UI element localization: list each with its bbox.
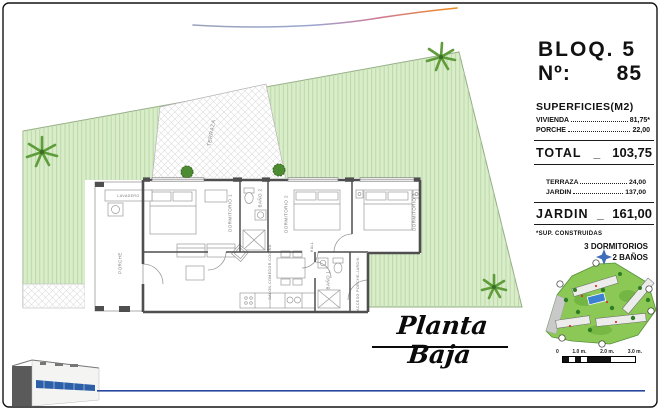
room-label-porche: PORCHE xyxy=(118,252,123,274)
surface-label: JARDIN xyxy=(546,188,571,198)
dot-leader xyxy=(580,183,627,184)
room-label-bano2: BAÑO 2 xyxy=(258,189,263,208)
divider xyxy=(534,164,654,165)
surface-row: PORCHE 22,00 xyxy=(536,126,650,136)
room-label-dormitorio3: DORMITORIO 3 xyxy=(412,193,417,231)
top-swoosh xyxy=(193,8,457,27)
surface-value: 137,00 xyxy=(625,188,646,198)
dresser xyxy=(205,190,227,202)
total-row: TOTAL _ 103,75 xyxy=(536,145,652,160)
scale-label: 0 xyxy=(556,349,559,355)
surface-label: PORCHE xyxy=(536,126,566,136)
scale-label: 1.0 m. xyxy=(572,349,586,355)
built-surface-rows: VIVIENDA 81,75* PORCHE 22,00 xyxy=(536,116,650,135)
dot-leader xyxy=(571,121,628,122)
surface-label: VIVIENDA xyxy=(536,116,569,126)
surface-value: 22,00 xyxy=(632,126,650,136)
surface-value: 81,75* xyxy=(630,116,650,126)
room-label-lavadero: LAVADERO xyxy=(117,194,139,198)
block-title: BLOQ. 5 xyxy=(538,38,636,62)
toilet xyxy=(244,188,254,204)
coffee-table xyxy=(186,266,204,280)
surface-value: 24,00 xyxy=(629,178,646,188)
dot-leader xyxy=(568,131,631,132)
plan-title-underline xyxy=(372,346,508,348)
logo-building xyxy=(12,360,99,406)
surface-label: TERRAZA xyxy=(546,178,578,188)
unit-number-row: Nº: 85 xyxy=(538,62,642,86)
surface-row: TERRAZA 24,00 xyxy=(546,178,646,188)
kitchen-counter xyxy=(240,293,315,308)
surface-row: VIVIENDA 81,75* xyxy=(536,116,650,126)
scale-bar-segments xyxy=(562,356,636,363)
washer xyxy=(108,203,123,216)
porch-paving xyxy=(23,284,85,308)
scale-bar: 0 1.0 m. 2.0 m. 3.0 m. xyxy=(556,349,642,363)
bedrooms-count: 3 DORMITORIOS xyxy=(536,242,648,253)
bathrooms-count: 2 BAÑOS xyxy=(536,253,648,264)
garden-label: JARDIN xyxy=(536,207,589,221)
unit-number-value: 85 xyxy=(617,62,642,86)
toilet xyxy=(333,258,343,273)
room-label-bano1: BAÑO 1 xyxy=(326,271,331,290)
divider xyxy=(534,202,654,203)
room-label-dormitorio1: DORMITORIO 1 xyxy=(228,194,233,232)
divider xyxy=(534,224,654,225)
terrace-paving xyxy=(152,84,286,180)
scale-label: 2.0 m. xyxy=(600,349,614,355)
bed xyxy=(294,190,340,230)
total-value: 103,75 xyxy=(612,145,652,160)
scale-segment xyxy=(587,357,611,362)
surfaces-title: SUPERFICIES(M2) xyxy=(536,101,634,113)
bed xyxy=(356,190,420,230)
garden-value: 161,00 xyxy=(612,206,652,221)
total-label: TOTAL xyxy=(536,146,582,160)
room-label-salon: SALON-COMEDOR-COCINA xyxy=(268,244,272,299)
shower xyxy=(318,290,340,308)
divider xyxy=(534,140,654,141)
surface-row: JARDIN 137,00 xyxy=(546,188,646,198)
unit-number-label: Nº: xyxy=(538,62,571,86)
bed xyxy=(150,190,196,234)
program-summary: 3 DORMITORIOS 2 BAÑOS xyxy=(536,242,648,263)
room-label-hall: HALL xyxy=(310,242,314,253)
scale-segment xyxy=(611,357,635,362)
scale-label: 3.0 m. xyxy=(628,349,642,355)
footnote: *SUP. CONSTRUIDAS xyxy=(536,231,602,237)
sink xyxy=(255,210,266,220)
garden-total-row: JARDIN _ 161,00 xyxy=(536,206,652,221)
room-label-dormitorio2: DORMITORIO 2 xyxy=(284,195,289,233)
room-label-acceso: ACCESO PORCHE-JARDIN xyxy=(356,257,360,311)
total-separator: _ xyxy=(594,146,601,160)
dot-leader xyxy=(573,193,623,194)
outdoor-surface-rows: TERRAZA 24,00 JARDIN 137,00 xyxy=(546,178,646,197)
shower xyxy=(243,230,265,250)
garden-separator: _ xyxy=(597,207,604,221)
plan-title: Planta Baja xyxy=(365,311,517,369)
scale-labels: 0 1.0 m. 2.0 m. 3.0 m. xyxy=(556,349,642,355)
plan-sheet: BLOQ. 5 Nº: 85 SUPERFICIES(M2) VIVIENDA … xyxy=(0,0,660,410)
